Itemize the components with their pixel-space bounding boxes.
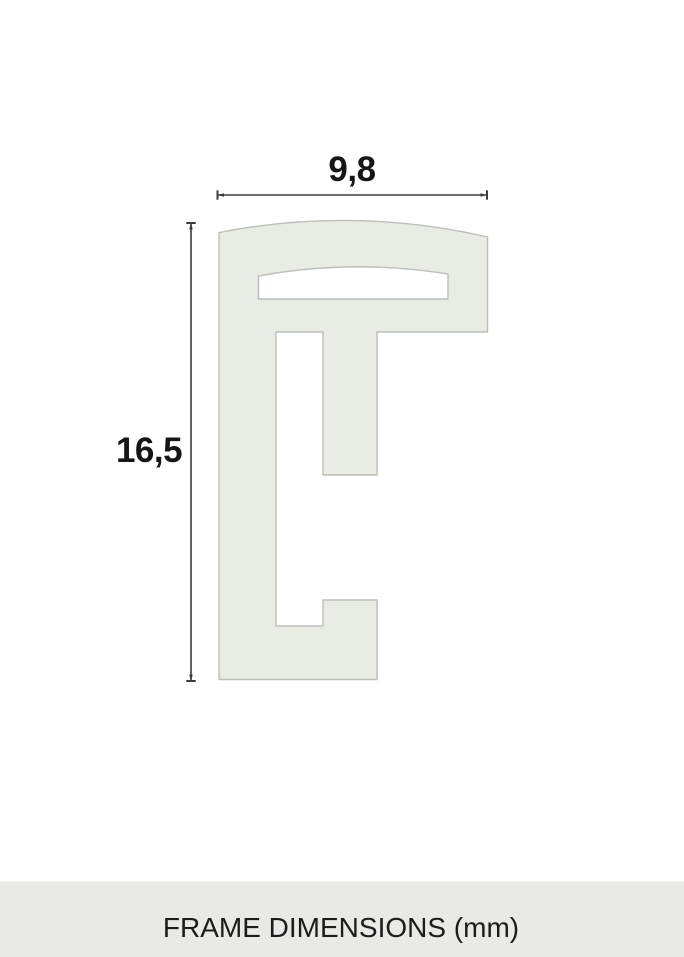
svg-text:9,8: 9,8 <box>328 150 375 189</box>
svg-text:FRAME DIMENSIONS (mm): FRAME DIMENSIONS (mm) <box>163 912 519 943</box>
svg-text:16,5: 16,5 <box>116 431 182 470</box>
